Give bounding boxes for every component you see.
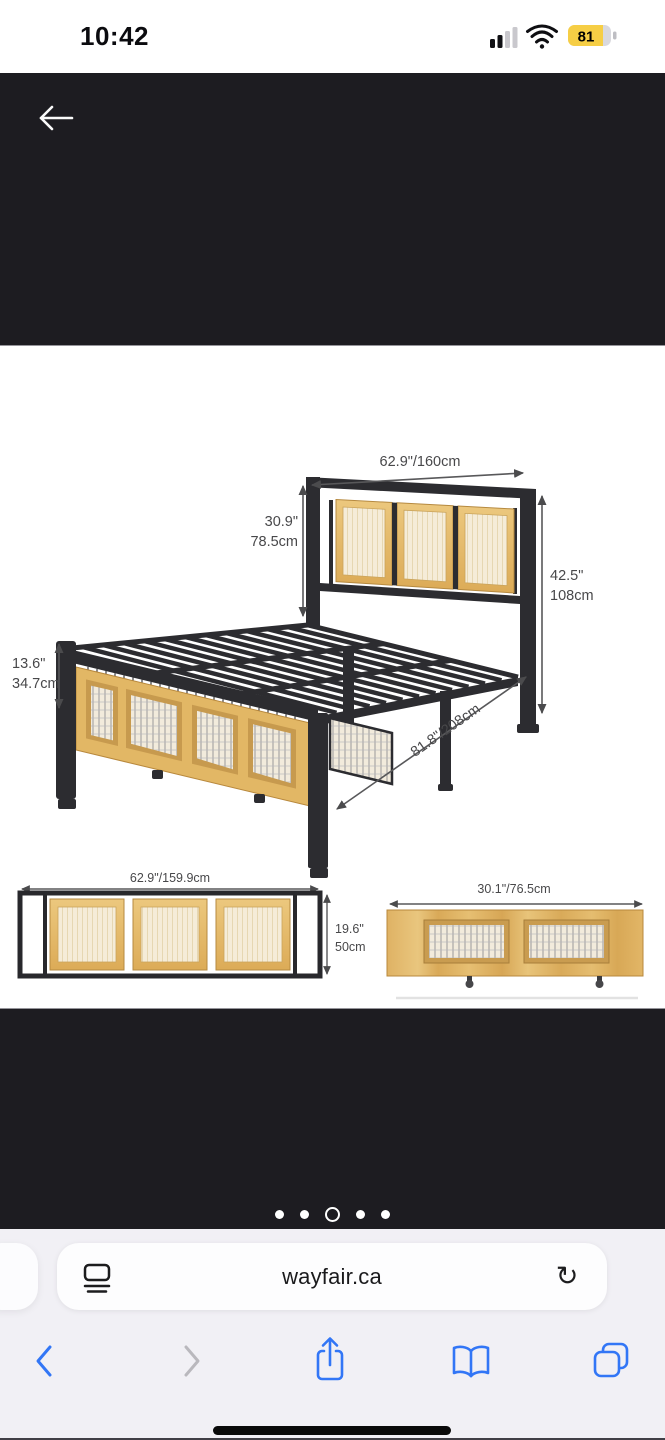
wifi-icon bbox=[528, 26, 557, 49]
product-image[interactable]: 62.9"/160cm 30.9" 78.5cm 42.5" 108cm 13.… bbox=[0, 345, 665, 1009]
address-bar[interactable]: wayfair.ca ↻ bbox=[57, 1243, 607, 1310]
dim-total-height-cm: 108cm bbox=[550, 588, 594, 604]
drawer-width-label: 30.1"/76.5cm bbox=[477, 882, 550, 896]
open-book-icon bbox=[449, 1343, 493, 1381]
safari-bottom-chrome: wayfair.ca ↻ bbox=[0, 1229, 665, 1440]
bookmarks-button[interactable] bbox=[449, 1343, 493, 1386]
chevron-back-icon bbox=[32, 1341, 58, 1381]
dim-total-height-in: 42.5" bbox=[550, 568, 583, 584]
hb-width-label: 62.9"/159.9cm bbox=[130, 871, 210, 885]
dim-panel-height-cm: 78.5cm bbox=[250, 534, 298, 550]
carousel-dot-1[interactable] bbox=[275, 1210, 284, 1219]
bed-dimension-diagram: 62.9"/160cm 30.9" 78.5cm 42.5" 108cm 13.… bbox=[0, 346, 665, 1008]
battery-icon: 81 bbox=[568, 25, 617, 46]
forward-nav-button[interactable] bbox=[178, 1341, 204, 1386]
status-icons: 81 bbox=[490, 22, 618, 55]
share-button[interactable] bbox=[310, 1335, 350, 1388]
reload-icon: ↻ bbox=[556, 1261, 579, 1292]
carousel-dot-3-active[interactable] bbox=[325, 1207, 340, 1222]
url-text: wayfair.ca bbox=[57, 1243, 607, 1310]
carousel-dots bbox=[0, 1204, 665, 1224]
back-button[interactable] bbox=[36, 102, 76, 134]
previous-tab-fragment[interactable] bbox=[0, 1243, 38, 1310]
photo-letterbox-top bbox=[0, 73, 665, 345]
storage-basket bbox=[330, 718, 392, 784]
back-nav-button[interactable] bbox=[32, 1341, 58, 1386]
carousel-dot-5[interactable] bbox=[381, 1210, 390, 1219]
tabs-button[interactable] bbox=[590, 1339, 632, 1386]
status-bar: 10:42 81 bbox=[0, 0, 665, 73]
reload-button[interactable]: ↻ bbox=[549, 1256, 585, 1296]
clock: 10:42 bbox=[80, 21, 149, 52]
photo-letterbox-bottom bbox=[0, 1009, 665, 1229]
dim-headboard-width: 62.9"/160cm bbox=[380, 454, 461, 470]
dim-footboard-height-in: 13.6" bbox=[12, 656, 45, 672]
caster-wheels bbox=[466, 976, 604, 988]
arrow-left-icon bbox=[36, 102, 76, 134]
home-indicator[interactable] bbox=[213, 1426, 451, 1435]
carousel-dot-2[interactable] bbox=[300, 1210, 309, 1219]
chevron-forward-icon bbox=[178, 1341, 204, 1381]
bed-main-view: 62.9"/160cm 30.9" 78.5cm 42.5" 108cm 13.… bbox=[12, 454, 594, 878]
dim-panel-height-in: 30.9" bbox=[265, 514, 298, 530]
drawer-front-view: 30.1"/76.5cm bbox=[387, 882, 643, 998]
share-icon bbox=[310, 1335, 350, 1383]
dim-footboard-height-cm: 34.7cm bbox=[12, 676, 60, 692]
iphone-screen: 10:42 81 bbox=[0, 0, 665, 1440]
battery-percent: 81 bbox=[578, 29, 595, 46]
carousel-dot-4[interactable] bbox=[356, 1210, 365, 1219]
tabs-icon bbox=[590, 1339, 632, 1381]
headboard-front-view: 62.9"/159.9cm 19.6" bbox=[20, 871, 366, 976]
hb-height-cm: 50cm bbox=[335, 940, 366, 954]
cellular-signal-icon bbox=[490, 27, 518, 48]
hb-height-in: 19.6" bbox=[335, 922, 364, 936]
